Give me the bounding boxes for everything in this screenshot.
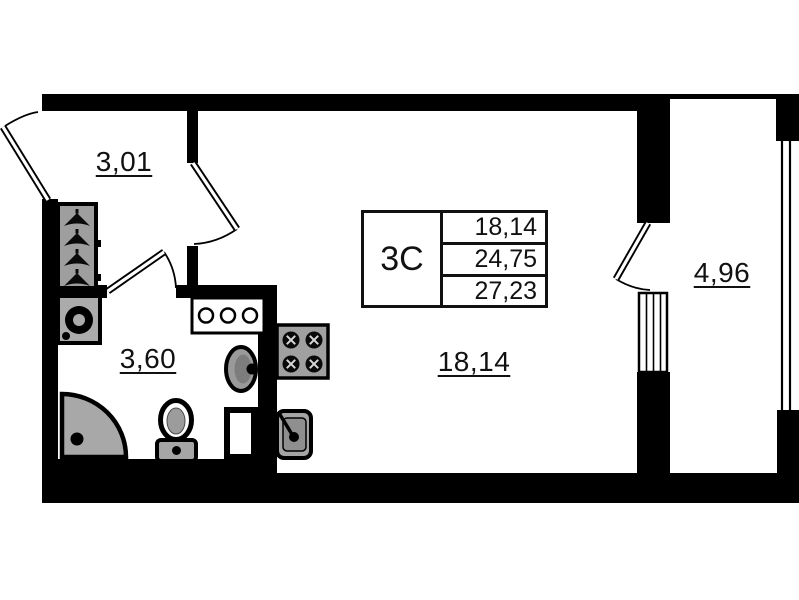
bathroom-area-label: 3,60 bbox=[98, 343, 198, 375]
unit-area-row-living: 18,14 bbox=[443, 213, 545, 245]
washing-machine-knob bbox=[62, 332, 70, 340]
washing-machine bbox=[58, 296, 100, 343]
unit-area-rows: 18,14 24,75 27,23 bbox=[443, 213, 545, 305]
hallway-door bbox=[193, 163, 237, 244]
partition-hallway-stub-bottom bbox=[187, 246, 198, 290]
partition-hallway-stub-top bbox=[187, 110, 198, 163]
stove bbox=[277, 325, 328, 378]
unit-type-cell: 3C bbox=[364, 213, 443, 305]
bathroom-door bbox=[108, 252, 176, 291]
shower-tray bbox=[62, 394, 126, 457]
hallway-door-swing-arc bbox=[194, 229, 237, 244]
stove-burner bbox=[306, 332, 323, 349]
wall-top-main bbox=[42, 94, 670, 111]
bathroom-door-swing-arc bbox=[164, 252, 176, 288]
unit-area-row-total-with-balcony: 27,23 bbox=[443, 277, 545, 306]
toilet bbox=[157, 401, 196, 462]
shower-drain bbox=[71, 433, 84, 446]
kitchen-sink bbox=[277, 411, 311, 458]
kitchen-sink-drain bbox=[289, 432, 299, 442]
wardrobe-nub bbox=[96, 240, 101, 247]
living-room-area-label: 18,14 bbox=[414, 346, 534, 378]
balcony-door bbox=[616, 223, 650, 290]
unit-area-row-total: 24,75 bbox=[443, 245, 545, 277]
vent-shaft bbox=[224, 407, 258, 460]
doors bbox=[3, 112, 650, 291]
balcony-area-label: 4,96 bbox=[672, 257, 772, 289]
balcony-door-swing-arc bbox=[616, 279, 650, 290]
stove-burner bbox=[283, 332, 300, 349]
entrance-door-swing-arc bbox=[5, 112, 38, 126]
riser-pipe bbox=[243, 309, 257, 323]
wardrobe bbox=[58, 204, 101, 288]
utility-risers bbox=[192, 298, 264, 333]
partition-balcony-pillar bbox=[637, 94, 670, 223]
balcony-partition-window bbox=[639, 293, 667, 372]
riser-pipe bbox=[199, 309, 213, 323]
stove-burner bbox=[306, 356, 323, 373]
bathroom-sink-faucet bbox=[247, 364, 258, 375]
vent-shaft-inner bbox=[230, 413, 251, 454]
stove-burner bbox=[283, 356, 300, 373]
entrance-door bbox=[3, 112, 48, 200]
unit-type-label: 3C bbox=[380, 240, 423, 279]
partition-balcony-lower bbox=[637, 372, 670, 473]
wall-right-top-block bbox=[776, 94, 799, 141]
riser-pipe bbox=[221, 309, 235, 323]
bathroom-sink bbox=[226, 347, 258, 391]
wall-right-bottom-block bbox=[777, 410, 799, 485]
unit-info-table: 3C 18,14 24,75 27,23 bbox=[361, 210, 548, 308]
hallway-area-label: 3,01 bbox=[74, 146, 174, 178]
facade-window bbox=[780, 141, 792, 410]
floor-plan: 3,01 3,60 18,14 4,96 3C 18,14 24,75 27,2… bbox=[0, 0, 799, 600]
wall-left bbox=[42, 199, 58, 503]
wardrobe-nub bbox=[96, 274, 101, 281]
